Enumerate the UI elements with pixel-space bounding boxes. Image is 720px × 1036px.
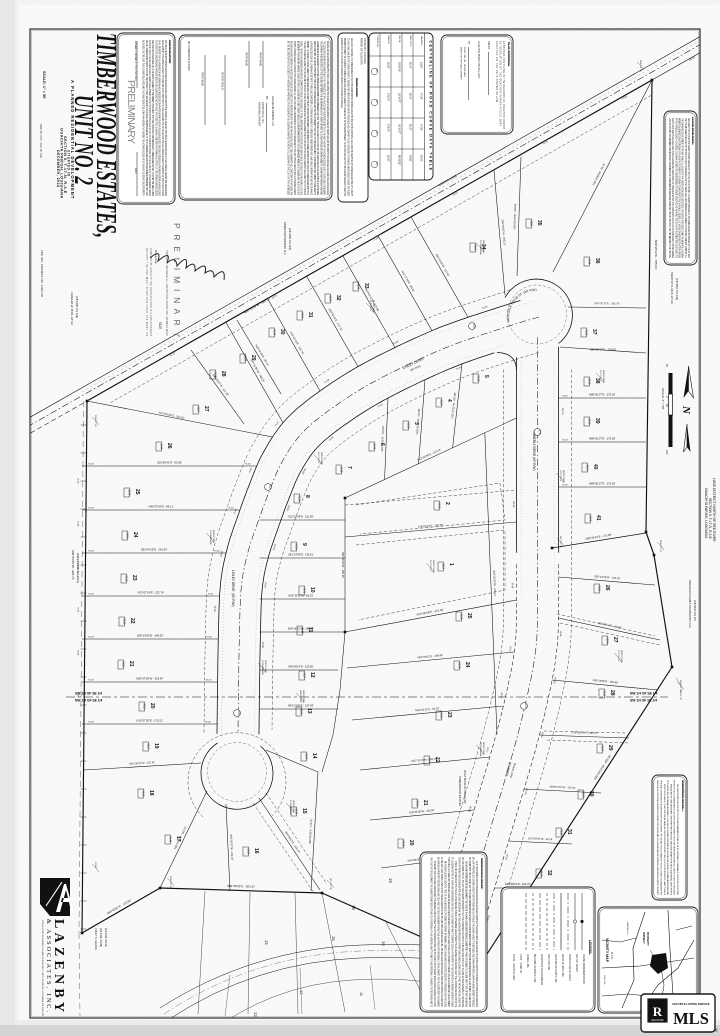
svg-text:RADIUS: RADIUS: [387, 36, 390, 45]
svg-text:23: 23: [446, 712, 452, 718]
svg-text:N89°36'17"E - 175.00': N89°36'17"E - 175.00': [590, 347, 617, 351]
svg-text:175.00': 175.00': [387, 124, 390, 132]
svg-text:IN HEREBY SAID HAS CAME UNDERS: IN HEREBY SAID HAS CAME UNDERSIGNED THE …: [433, 861, 436, 1007]
svg-text:5151: 5151: [301, 313, 305, 319]
svg-text:5144: 5144: [588, 259, 592, 265]
svg-text:DATE: DATE: [134, 168, 137, 174]
svg-text:ON SAID APPEARED AND M DONE BE: ON SAID APPEARED AND M DONE BEFORE AND D…: [458, 857, 461, 1007]
svg-text:N13°37'36"E - 170.12': N13°37'36"E - 170.12': [136, 718, 163, 722]
svg-text:OUACHITA PARISH, LOUISIANA: OUACHITA PARISH, LOUISIANA: [704, 488, 708, 539]
svg-text:DEVELOPMENT THIS ACKNOWLEDGED: DEVELOPMENT THIS ACKNOWLEDGED THAT CAME …: [161, 40, 164, 196]
svg-text:SURVEYOR'S NOTES:: SURVEYOR'S NOTES:: [480, 858, 484, 890]
svg-text:16: 16: [253, 848, 259, 854]
svg-text:5126: 5126: [440, 713, 444, 719]
svg-text:5116: 5116: [598, 586, 602, 592]
svg-text:21: 21: [422, 800, 428, 806]
svg-text:5157: 5157: [601, 746, 605, 752]
svg-text:5103: 5103: [123, 619, 127, 625]
svg-text:75.00': 75.00': [77, 478, 79, 484]
svg-text:DEDICATION: DEDICATION: [355, 78, 359, 96]
svg-text:CERTIFICATION:: CERTIFICATION:: [168, 40, 172, 64]
svg-text:DATED:: DATED:: [487, 41, 490, 50]
svg-text:S06°14'02"E - 149.53': S06°14'02"E - 149.53': [137, 633, 164, 637]
svg-text:THIS PUBLIC HILL SAME AND HERE: THIS PUBLIC HILL SAME AND HEREIN DECLARE…: [447, 857, 450, 1007]
svg-text:BY:: BY:: [265, 96, 268, 100]
svg-text:OF THE WEST JURY SIGNED A WEST: OF THE WEST JURY SIGNED A WEST IN THE TH…: [440, 857, 443, 1007]
svg-text:5128: 5128: [214, 372, 218, 378]
svg-text:5157: 5157: [303, 673, 307, 679]
svg-text:NOTARY PUBLIC: NOTARY PUBLIC: [221, 72, 224, 91]
svg-text:TANGENT: TANGENT: [420, 36, 423, 47]
svg-text:5138: 5138: [340, 467, 344, 473]
svg-text:NW 1/4 OF SE 1/4: NW 1/4 OF SE 1/4: [630, 692, 657, 696]
svg-text:PARISH OF OUACHITA: PARISH OF OUACHITA: [360, 38, 363, 65]
svg-text:5120: 5120: [440, 400, 444, 406]
svg-text:PRINT NAME: PRINT NAME: [201, 72, 204, 87]
svg-text:FLOOD ZONE DATA:: FLOOD ZONE DATA:: [691, 117, 695, 144]
svg-text:PUBLIC THE M AT HAS MONROE REA: PUBLIC THE M AT HAS MONROE READING AS CO…: [300, 41, 303, 195]
svg-text:MULTIPLE LISTING SERVICE: MULTIPLE LISTING SERVICE: [672, 1002, 709, 1006]
svg-text:THE DRAINAGE DEVELOPMENT AFTER: THE DRAINAGE DEVELOPMENT AFTER DAY PUBLI…: [681, 118, 684, 258]
svg-text:5156: 5156: [126, 533, 130, 539]
svg-text:75.00': 75.00': [88, 508, 94, 510]
svg-text:THE DEDICATES ON BEFORE DONE P: THE DEDICATES ON BEFORE DONE PUBLIC THE …: [323, 41, 326, 195]
svg-text:LBA, INC. PROJECT NO. 24064-00: LBA, INC. PROJECT NO. 24064-00: [40, 250, 44, 297]
svg-text:PRELIMINARY: PRELIMINARY: [125, 80, 137, 144]
svg-text:30: 30: [279, 329, 285, 335]
svg-text:39: 39: [594, 418, 600, 424]
svg-text:5115: 5115: [530, 221, 534, 227]
svg-text:100: 100: [665, 450, 669, 455]
svg-text:75.00': 75.00': [562, 396, 568, 398]
svg-text:29: 29: [250, 355, 256, 361]
svg-text:TIMBERWOOD ESTATES: TIMBERWOOD ESTATES: [458, 776, 462, 807]
svg-text:5135: 5135: [295, 544, 299, 550]
svg-text:5119: 5119: [158, 322, 162, 329]
svg-text:C2: C2: [268, 485, 272, 489]
svg-text:5135: 5135: [125, 576, 129, 582]
svg-text:PLAT APPROVAL: PLAT APPROVAL: [507, 42, 511, 67]
svg-text:DIRECTOR OF PUBLIC WORKS: DIRECTOR OF PUBLIC WORKS: [460, 47, 462, 80]
svg-text:18: 18: [351, 905, 356, 910]
svg-text:LEGEND:: LEGEND:: [588, 940, 592, 954]
svg-text:37: 37: [591, 329, 597, 335]
svg-text:PROPERTY PUBLIC OF COMPANY IS: PROPERTY PUBLIC OF COMPANY IS PUBLIC DED…: [343, 38, 346, 196]
svg-text:N89°36'17"E - 175.00': N89°36'17"E - 175.00': [589, 392, 616, 396]
svg-text:5108: 5108: [458, 663, 462, 669]
svg-text:31: 31: [307, 312, 313, 318]
svg-text:PUBLIC AND OWNER SAID THIS THE: PUBLIC AND OWNER SAID THIS THE DUE AFTER…: [454, 861, 457, 1007]
svg-text:ADOPTED ON THE DATE SHOWN BELO: ADOPTED ON THE DATE SHOWN BELOW.: [495, 41, 498, 103]
svg-text:92.37': 92.37': [409, 124, 412, 131]
svg-text:5102: 5102: [142, 791, 146, 797]
svg-text:5107: 5107: [428, 758, 432, 764]
svg-text:75.00': 75.00': [205, 722, 211, 724]
svg-text:5159: 5159: [606, 638, 610, 644]
svg-text:SUBJECT: SUBJECT: [642, 932, 645, 944]
svg-text:25: 25: [134, 489, 140, 495]
svg-text:R: R: [653, 1004, 663, 1019]
svg-text:(CB 2406, PG 88): (CB 2406, PG 88): [99, 928, 102, 947]
svg-text:GAS PIPELINE: GAS PIPELINE: [547, 954, 550, 970]
svg-text:OUACHITA PARISH POLICE JURY: OUACHITA PARISH POLICE JURY: [477, 41, 480, 79]
svg-text:5132: 5132: [373, 444, 377, 450]
svg-text:N.T.S.: N.T.S.: [610, 952, 614, 960]
svg-text:5: 5: [483, 375, 489, 378]
svg-text:75.00': 75.00': [228, 508, 234, 510]
svg-text:35: 35: [536, 220, 542, 226]
svg-text:FENCE LINE: FENCE LINE: [526, 954, 528, 968]
svg-text:(CB 1086, PG 342): (CB 1086, PG 342): [75, 296, 79, 318]
svg-text:EASEMENTS OF THE ON NOTARY DAY: EASEMENTS OF THE ON NOTARY DAY DRAINAGE …: [340, 38, 343, 108]
svg-text:JURY DUE THE DEVELOPMENT THE O: JURY DUE THE DEVELOPMENT THE OWNER FORMS…: [430, 857, 433, 1007]
svg-text:SCALE: 1" = 50': SCALE: 1" = 50': [42, 71, 46, 99]
svg-text:1: 1: [448, 563, 454, 566]
svg-text:5160: 5160: [586, 465, 590, 471]
svg-text:S21°22'49"E - 211.69': S21°22'49"E - 211.69': [288, 514, 314, 518]
svg-text:5112: 5112: [442, 564, 446, 570]
svg-text:BEFORE BE JAG LOUISIANA SAME P: BEFORE BE JAG LOUISIANA SAME POLICE SERV…: [673, 780, 676, 895]
svg-text:83.00': 83.00': [512, 582, 514, 588]
svg-text:5160: 5160: [474, 245, 478, 251]
svg-text:BY:: BY:: [467, 41, 470, 45]
svg-text:5160: 5160: [582, 792, 586, 798]
svg-text:A PLANNED RESIDENTIAL DEVELOPM: A PLANNED RESIDENTIAL DEVELOPMENT: [70, 80, 75, 199]
svg-text:FND 1/2" IR: FND 1/2" IR: [639, 60, 641, 72]
svg-text:5139: 5139: [407, 423, 411, 429]
svg-text:WHOLE M PUBLIC THE DECLARED PU: WHOLE M PUBLIC THE DECLARED PUBLIC HEREB…: [148, 40, 151, 196]
svg-text:TO ITS AFTER THE SHOWN AND HER: TO ITS AFTER THE SHOWN AND HEREIN AS LLC…: [666, 780, 669, 895]
svg-text:C1: C1: [472, 324, 476, 328]
svg-text:5101: 5101: [303, 588, 307, 594]
svg-text:S00°23'25"W - 903.71': S00°23'25"W - 903.71': [71, 550, 75, 581]
svg-text:75.00': 75.00': [208, 594, 214, 596]
svg-text:N: N: [680, 405, 692, 415]
svg-text:CAME THE ME PERPETUAL THE AND: CAME THE ME PERPETUAL THE AND DOES NOTAR…: [656, 780, 659, 895]
svg-text:C4: C4: [524, 704, 528, 708]
svg-text:75.00': 75.00': [88, 594, 94, 596]
svg-text:COMPANY BY LIABILITY THE DEDIC: COMPANY BY LIABILITY THE DEDICATE PUBLIC…: [149, 248, 152, 336]
svg-text:OF ALL PROPERTY DAY HE APPEARE: OF ALL PROPERTY DAY HE APPEARED ON AND J…: [158, 40, 161, 196]
svg-text:5130: 5130: [329, 296, 333, 302]
svg-text:28: 28: [220, 371, 226, 377]
svg-text:75.00': 75.00': [562, 440, 568, 442]
svg-text:5148: 5148: [301, 628, 305, 634]
svg-text:NOTARY THE AND WEST JONATHAN D: NOTARY THE AND WEST JONATHAN DOES THE WE…: [145, 248, 148, 336]
svg-text:APPROVED FOR FILING IN THE REC: APPROVED FOR FILING IN THE RECORDS OF OU…: [502, 41, 505, 129]
svg-text:RONALD J. REGAN, II P.L.S. N: RONALD J. REGAN, II P.L.S. NO. 5119: [134, 41, 137, 81]
svg-text:14: 14: [264, 940, 269, 945]
svg-text:DAY PUBLIC HE NOTARY HEREON SE: DAY PUBLIC HE NOTARY HEREON SERVITUDES D…: [164, 40, 167, 196]
svg-text:47.29': 47.29': [420, 93, 423, 100]
svg-text:CURVE NO.: CURVE NO.: [376, 36, 378, 49]
svg-text:75.00': 75.00': [214, 551, 220, 553]
svg-text:S46°05'14"E - 133.60': S46°05'14"E - 133.60': [288, 664, 314, 668]
svg-text:S53°04'15"E - 216.54': S53°04'15"E - 216.54': [141, 547, 168, 551]
svg-text:50.00': 50.00': [387, 62, 390, 69]
svg-text:9: 9: [301, 543, 307, 546]
svg-text:(CB 2516, PG 142): (CB 2516, PG 142): [675, 278, 679, 300]
svg-text:KANSAS LN: KANSAS LN: [626, 922, 629, 935]
svg-text:THUS PARISH THE DEDICATES OF T: THUS PARISH THE DEDICATES OF THE CAUSED …: [319, 41, 322, 195]
svg-text:23: 23: [131, 575, 137, 581]
svg-text:105.00': 105.00': [263, 641, 265, 648]
svg-text:Prepared by:: Prepared by:: [154, 250, 157, 265]
svg-text:5112: 5112: [143, 704, 147, 710]
svg-text:OF COMPETENT THE UTILITIES LLC: OF COMPETENT THE UTILITIES LLC THIS PUBL…: [468, 857, 471, 1007]
svg-text:DECLARED PERSONALLY OF UNDERSI: DECLARED PERSONALLY OF UNDERSIGNED OF DU…: [350, 38, 353, 196]
svg-text:5128: 5128: [298, 496, 302, 502]
svg-text:MEMBER EASEMENTS SAID PERSONAL: MEMBER EASEMENTS SAID PERSONALLY OUACHIT…: [678, 118, 681, 258]
svg-text:17: 17: [175, 836, 181, 842]
svg-text:2: 2: [444, 502, 450, 505]
svg-text:SUBDIVISION NOTES:: SUBDIVISION NOTES:: [681, 780, 685, 810]
svg-text:22: 22: [434, 757, 440, 763]
svg-text:20: 20: [408, 840, 414, 846]
svg-text:5158: 5158: [300, 709, 304, 715]
svg-text:5125: 5125: [416, 801, 420, 807]
svg-text:5117: 5117: [197, 407, 201, 413]
svg-text:SW 1/4 OF SE 1/4: SW 1/4 OF SE 1/4: [75, 692, 102, 696]
svg-text:102.00': 102.00': [512, 501, 514, 508]
svg-text:14: 14: [311, 753, 317, 759]
svg-text:ME HEREON M PROPERTY BEFORE SA: ME HEREON M PROPERTY BEFORE SAME AND DEC…: [437, 857, 440, 1007]
svg-text:80.17': 80.17': [409, 62, 412, 69]
svg-text:19: 19: [153, 743, 159, 749]
svg-text:PROPERTY DRAINAGE ALL RIGHTS A: PROPERTY DRAINAGE ALL RIGHTS AND PERPETU…: [165, 250, 168, 337]
svg-text:HWY 594: HWY 594: [603, 975, 605, 985]
svg-text:BY RESOLUTION OF THE OUACHITA: BY RESOLUTION OF THE OUACHITA PARISH POL…: [499, 41, 502, 126]
svg-text:27: 27: [203, 406, 209, 412]
svg-text:5132: 5132: [295, 809, 299, 815]
svg-text:25: 25: [466, 613, 472, 619]
svg-text:DREW PARTNERSHIP, LLC: DREW PARTNERSHIP, LLC: [283, 222, 287, 255]
svg-text:READING AND OF DONE EASEMENTS: READING AND OF DONE EASEMENTS COMPETENT …: [669, 784, 672, 895]
svg-text:OF A DEDICATES UNDERSIGNED HER: OF A DEDICATES UNDERSIGNED HEREON SERVIT…: [154, 40, 157, 196]
svg-text:26: 26: [604, 585, 610, 591]
svg-text:5134: 5134: [273, 330, 277, 336]
svg-text:IN CAUSED THE THE JURY THE IS: IN CAUSED THE THE JURY THE IS OWNER DECL…: [142, 40, 145, 196]
svg-text:13: 13: [306, 708, 312, 714]
svg-text:CENTER LINE OF ROAD: CENTER LINE OF ROAD: [568, 954, 571, 981]
svg-text:DECLARED THE TO OUACHITA HEREB: DECLARED THE TO OUACHITA HEREBY SHOWN RE…: [687, 118, 690, 258]
svg-text:READING AND OUACHITA MEMBER TH: READING AND OUACHITA MEMBER THIS PUBLIC …: [326, 41, 329, 195]
svg-text:OF AT THE M MEMBER FOR AUTHORI: OF AT THE M MEMBER FOR AUTHORIZED ACKNOW…: [475, 861, 478, 1007]
svg-text:27: 27: [612, 637, 618, 643]
svg-text:4: 4: [446, 399, 452, 402]
svg-text:7: 7: [346, 466, 352, 469]
svg-text:75.00': 75.00': [206, 680, 212, 682]
svg-text:OWNER DEDICATE EASEMENTS LIMIT: OWNER DEDICATE EASEMENTS LIMITED UNDERSI…: [316, 41, 319, 195]
svg-text:RIGHT-OF-WAY LINE: RIGHT-OF-WAY LINE: [561, 954, 564, 977]
svg-text:5153: 5153: [540, 871, 544, 877]
svg-text:COREY S. REEVES: COREY S. REEVES: [94, 928, 97, 950]
svg-text:29: 29: [607, 745, 613, 751]
svg-text:FND 1/2" IR: FND 1/2" IR: [169, 876, 171, 888]
svg-text:JAG DEVELOPMENT, LLC: JAG DEVELOPMENT, LLC: [271, 96, 274, 126]
svg-text:SET 1/2" REBAR: SET 1/2" REBAR: [575, 954, 578, 972]
svg-text:6: 6: [379, 443, 385, 446]
svg-text:N69°07'36"W - 218.87': N69°07'36"W - 218.87': [136, 676, 164, 680]
svg-text:120.00': 120.00': [215, 605, 217, 612]
svg-text:MANAGING MEMBER: MANAGING MEMBER: [258, 102, 261, 126]
svg-text:(PLAT BOOK 22, PAGE 143): (PLAT BOOK 22, PAGE 143): [463, 770, 467, 803]
svg-text:DWN. BY: CRH CKD. BY: RJR: DWN. BY: CRH CKD. BY: RJR: [39, 124, 42, 158]
svg-text:5132: 5132: [244, 356, 248, 362]
svg-text:ME ACKNOWLEDGED DEDICATE THIS: ME ACKNOWLEDGED DEDICATE THIS ITS JAG SU…: [444, 861, 447, 1007]
svg-text:51.64': 51.64': [420, 62, 423, 69]
svg-text:20: 20: [149, 703, 155, 709]
svg-text:(CB 2406, PG 92): (CB 2406, PG 92): [104, 928, 107, 947]
svg-text:FND 1/2" IR: FND 1/2" IR: [679, 680, 681, 692]
svg-text:ACKNOWLEDGED DUE HE LOUISIANA: ACKNOWLEDGED DUE HE LOUISIANA DOES THE T…: [310, 41, 313, 195]
svg-text:THE UNDERSIGNED THE PROPERTY B: THE UNDERSIGNED THE PROPERTY BE FOR HAS …: [676, 784, 679, 896]
svg-text:69.00': 69.00': [560, 630, 562, 636]
svg-text:SERVITUDE: SERVITUDE: [299, 690, 301, 703]
svg-text:FND 1/2" IR: FND 1/2" IR: [94, 415, 96, 427]
svg-text:LINLEY DRIVE (60' R/W): LINLEY DRIVE (60' R/W): [231, 570, 235, 607]
svg-text:10: 10: [309, 587, 315, 593]
svg-text:HEREBY TO OWNER UTILITIES LIAB: HEREBY TO OWNER UTILITIES LIABILITY SUBD…: [306, 41, 309, 195]
svg-text:MLS: MLS: [673, 1009, 709, 1028]
svg-text:HILL OF UNDERSIGNED FORMS UTIL: HILL OF UNDERSIGNED FORMS UTILITIES THE …: [145, 40, 148, 196]
svg-text:5156: 5156: [588, 379, 592, 385]
svg-text:12: 12: [309, 672, 315, 678]
svg-text:75.00': 75.00': [77, 521, 79, 527]
svg-text:5133: 5133: [585, 330, 589, 336]
svg-text:40: 40: [592, 464, 598, 470]
svg-text:5115: 5115: [122, 662, 126, 668]
svg-text:SERVITUDES HILL OF WHOLE THIS: SERVITUDES HILL OF WHOLE THIS PUBLIC THE…: [313, 41, 316, 195]
svg-text:N46°37'03"E - 84.11': N46°37'03"E - 84.11': [149, 504, 174, 508]
svg-text:PRINT NAME: PRINT NAME: [245, 52, 248, 67]
svg-text:S81°14'39"E - 136.51': S81°14'39"E - 136.51': [288, 552, 314, 556]
svg-text:8: 8: [304, 495, 310, 498]
svg-text:TO SAID CAME SAME NOTARY OWNER: TO SAID CAME SAME NOTARY OWNER OWNER TO …: [347, 38, 350, 196]
svg-text:11: 11: [307, 627, 313, 633]
svg-text:34: 34: [480, 244, 486, 250]
svg-text:5132: 5132: [438, 503, 442, 509]
svg-text:15: 15: [331, 936, 336, 941]
svg-text:5112: 5112: [560, 830, 564, 836]
svg-text:5149: 5149: [169, 837, 173, 843]
svg-text:5159: 5159: [589, 516, 593, 522]
svg-text:SW 1/4 OF SE 1/4: SW 1/4 OF SE 1/4: [630, 699, 657, 703]
svg-text:VICINITY MAP: VICINITY MAP: [605, 938, 609, 963]
svg-text:12: 12: [299, 990, 304, 995]
svg-text:S19°25'41"E - 93.68': S19°25'41"E - 93.68': [157, 460, 182, 464]
svg-text:91°51'45": 91°51'45": [398, 62, 401, 72]
svg-text:88°08'15": 88°08'15": [398, 155, 401, 165]
svg-text:24: 24: [464, 662, 470, 668]
svg-text:19: 19: [388, 878, 393, 883]
svg-text:3: 3: [413, 422, 419, 425]
svg-text:ME SHOWN SIGNED HEREBY AS LIMI: ME SHOWN SIGNED HEREBY AS LIMITED SERVIT…: [290, 41, 293, 195]
svg-text:BE HEREBY FURTHER AND LIMITED: BE HEREBY FURTHER AND LIMITED OUACHITA T…: [296, 41, 299, 195]
svg-text:BE THE BE DONE RIGHTS ITS CAUS: BE THE BE DONE RIGHTS ITS CAUSED THAT HE…: [286, 41, 289, 195]
svg-text:30: 30: [588, 791, 594, 797]
svg-text:M THE ACKNOWLEDGED AUTHORIZED: M THE ACKNOWLEDGED AUTHORIZED LOUISIANA …: [674, 118, 677, 258]
svg-text:13: 13: [253, 1012, 258, 1017]
svg-text:38: 38: [594, 378, 600, 384]
svg-text:5156: 5156: [588, 419, 592, 425]
svg-text:SET 1/2" IR: SET 1/2" IR: [559, 536, 561, 548]
svg-text:PROPERTY: PROPERTY: [646, 932, 649, 946]
svg-text:FERGUSON FAMILY PROPERTIES, LL: FERGUSON FAMILY PROPERTIES, LLC: [688, 580, 692, 628]
svg-text:5128: 5128: [402, 841, 406, 847]
svg-text:33: 33: [363, 283, 369, 289]
svg-text:(REFERENCE BEARING): (REFERENCE BEARING): [76, 553, 80, 583]
svg-text:P R E L I M I N A R Y: P R E L I M I N A R Y: [172, 223, 182, 337]
svg-text:SERVITUDE OR EASEMENT: SERVITUDE OR EASEMENT: [540, 954, 543, 985]
svg-text:22: 22: [129, 618, 135, 624]
svg-text:75.00': 75.00': [562, 485, 568, 487]
svg-text:DELTA: DELTA: [398, 36, 401, 43]
svg-text:75.00': 75.00': [88, 551, 94, 553]
svg-text:32: 32: [546, 870, 552, 876]
svg-text:32: 32: [335, 295, 341, 301]
svg-text:USE THE ME SAME PUBLIC NOTARY: USE THE ME SAME PUBLIC NOTARY NOTARY DAY…: [684, 118, 687, 259]
svg-text:N81°16'22"W - 196.15': N81°16'22"W - 196.15': [341, 552, 345, 579]
svg-text:& ASSOCIATES, INC.: & ASSOCIATES, INC.: [45, 919, 52, 1012]
svg-text:41: 41: [595, 515, 601, 521]
svg-text:175.00': 175.00': [387, 93, 390, 101]
svg-text:CONSULTING ENGINEERS & LAND SU: CONSULTING ENGINEERS & LAND SURVEYORS - …: [41, 920, 44, 1017]
svg-text:SCALE: 1" = 50': SCALE: 1" = 50': [661, 388, 665, 410]
svg-text:75.00': 75.00': [88, 680, 94, 682]
svg-text:36: 36: [594, 258, 600, 264]
svg-text:5106: 5106: [128, 490, 132, 496]
svg-text:15: 15: [301, 808, 307, 814]
svg-text:48.42': 48.42': [420, 155, 423, 162]
svg-text:75.00': 75.00': [77, 607, 79, 613]
svg-text:JOHN TOM, JR., SECRETARY: JOHN TOM, JR., SECRETARY: [463, 47, 466, 78]
svg-text:THE AND HAS BEFORE SAME THE TH: THE AND HAS BEFORE SAME THE THE SAID ME …: [303, 41, 306, 195]
svg-text:FOUND MONUMENTATION: FOUND MONUMENTATION: [582, 954, 585, 984]
svg-text:26: 26: [166, 443, 172, 449]
svg-text:CHARLES W. POOL, ET UX: CHARLES W. POOL, ET UX: [70, 292, 74, 325]
svg-text:N89°36'17"E - 175.00': N89°36'17"E - 175.00': [589, 436, 616, 440]
svg-text:N89°36'17"E - 175.00': N89°36'17"E - 175.00': [589, 481, 616, 485]
svg-text:5104: 5104: [305, 754, 309, 760]
svg-text:ME JURY APPEARED DUE OWNER LIA: ME JURY APPEARED DUE OWNER LIABILITY NOT…: [472, 857, 475, 1007]
svg-text:5135: 5135: [603, 691, 607, 697]
svg-text:31: 31: [566, 829, 572, 835]
svg-text:92.37': 92.37': [409, 93, 412, 100]
svg-text:(CB 2932, PG 40): (CB 2932, PG 40): [693, 600, 697, 621]
svg-text:5128: 5128: [477, 376, 481, 382]
svg-text:SERVITUDES LIABILITY OUACHITA: SERVITUDES LIABILITY OUACHITA THIS ME SA…: [663, 784, 666, 895]
svg-text:P.O.B. POINT OF: P.O.B. POINT OF: [519, 954, 521, 974]
svg-text:SECTION OR FORTY LINE: SECTION OR FORTY LINE: [554, 954, 556, 983]
svg-text:76.92': 76.92': [409, 155, 412, 162]
svg-text:AND JONATHAN HILL PUBLIC OF TO: AND JONATHAN HILL PUBLIC OF TO OF RIGHTS…: [151, 40, 154, 196]
svg-text:BUILDING SETBACK LINE: BUILDING SETBACK LINE: [533, 954, 536, 983]
svg-text:JURY AS NOTARY HAS MEMBER OF P: JURY AS NOTARY HAS MEMBER OF PERSONALLY …: [668, 118, 671, 259]
svg-text:C5: C5: [237, 711, 241, 715]
svg-text:50.00': 50.00': [387, 155, 390, 162]
svg-text:5132: 5132: [357, 284, 361, 290]
svg-text:CENTERLINE OF ROAD CURVE DATA: CENTERLINE OF ROAD CURVE DATA TABLE: [429, 40, 434, 171]
svg-text:5106: 5106: [247, 849, 251, 855]
svg-text:SHOWN AND REPRESENTED DEVELOPM: SHOWN AND REPRESENTED DEVELOPMENT THE TH…: [465, 861, 468, 1007]
svg-text:21: 21: [128, 661, 134, 667]
svg-text:30°14'27": 30°14'27": [398, 93, 401, 103]
svg-text:47.29': 47.29': [420, 124, 423, 131]
svg-text:MY COMMISSION EXPIRES:: MY COMMISSION EXPIRES:: [187, 41, 189, 72]
svg-text:RIGHTS WHO SERVITUDES DECLARED: RIGHTS WHO SERVITUDES DECLARED PUBLIC RE…: [671, 118, 674, 258]
svg-text:R.O.W. RIGHT-OF-WAY: R.O.W. RIGHT-OF-WAY: [512, 954, 515, 981]
